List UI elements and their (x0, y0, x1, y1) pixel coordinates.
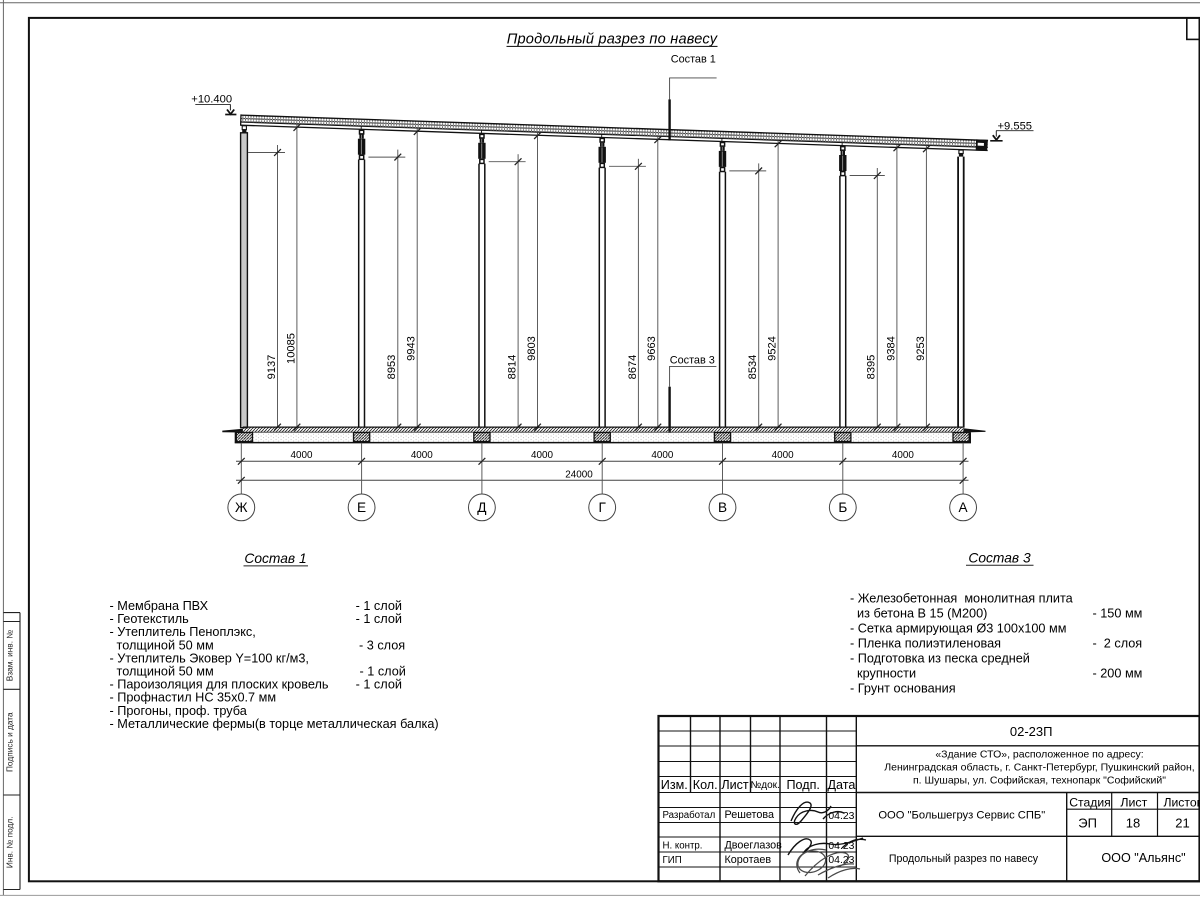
svg-text:- 150 мм: - 150 мм (1093, 607, 1143, 621)
svg-text:9384: 9384 (885, 336, 897, 361)
svg-text:9663: 9663 (646, 336, 658, 361)
svg-text:Продольный разрез по навесу: Продольный разрез по навесу (889, 853, 1039, 865)
svg-text:4000: 4000 (411, 450, 433, 461)
svg-text:4000: 4000 (651, 450, 673, 461)
svg-text:В: В (718, 500, 727, 515)
svg-text:Инв. № подл.: Инв. № подл. (5, 816, 15, 868)
svg-text:А: А (959, 500, 969, 515)
svg-text:04.23: 04.23 (828, 841, 854, 852)
svg-text:Кол.: Кол. (693, 778, 718, 792)
svg-text:Взам. инв. №: Взам. инв. № (5, 630, 15, 682)
svg-text:9803: 9803 (526, 336, 538, 361)
svg-text:из бетона В 15 (М200): из бетона В 15 (М200) (850, 607, 987, 621)
svg-text:Двоеглазов: Двоеглазов (725, 840, 783, 852)
svg-text:- 200 мм: - 200 мм (1093, 667, 1143, 681)
svg-text:9943: 9943 (406, 336, 418, 361)
svg-text:9524: 9524 (767, 336, 779, 361)
svg-text:Продольный разрез по навесу: Продольный разрез по навесу (507, 32, 719, 48)
svg-text:- Пароизоляция для плоских кро: - Пароизоляция для плоских кровель (110, 678, 329, 692)
svg-text:18: 18 (1126, 816, 1140, 831)
svg-text:8814: 8814 (507, 355, 519, 380)
svg-text:21: 21 (1175, 816, 1189, 831)
svg-text:Ж: Ж (235, 500, 248, 515)
svg-text:«Здание СТО», расположенное по: «Здание СТО», расположенное по адресу: (935, 748, 1143, 760)
svg-text:8674: 8674 (627, 355, 639, 380)
svg-text:8395: 8395 (866, 355, 878, 380)
svg-text:- Грунт основания: - Грунт основания (850, 682, 956, 696)
svg-text:10085: 10085 (285, 333, 297, 364)
svg-text:- Мембрана ПВХ: - Мембрана ПВХ (110, 599, 209, 613)
svg-text:02-23П: 02-23П (1010, 724, 1053, 739)
svg-text:- 1 слой: - 1 слой (356, 678, 402, 692)
svg-text:24000: 24000 (565, 469, 593, 480)
svg-text:4000: 4000 (531, 450, 553, 461)
svg-text:Подпись и дата: Подпись и дата (5, 712, 15, 772)
svg-text:9137: 9137 (266, 355, 278, 380)
svg-text:ООО "Альянс": ООО "Альянс" (1101, 851, 1185, 865)
svg-text:+10.400: +10.400 (191, 93, 232, 105)
svg-text:толщиной 50 мм: толщиной 50 мм (110, 665, 214, 679)
svg-text:Стадия: Стадия (1069, 795, 1111, 809)
svg-text:8534: 8534 (747, 355, 759, 380)
svg-text:Ленинградская область, г. Санк: Ленинградская область, г. Санкт-Петербур… (884, 762, 1194, 774)
svg-text:Подп.: Подп. (786, 778, 819, 792)
svg-text:ГИП: ГИП (663, 855, 682, 866)
svg-text:Состав 3: Состав 3 (968, 550, 1031, 565)
svg-text:- Железобетонная монолитная п: - Железобетонная монолитная плита (850, 592, 1074, 606)
svg-text:4000: 4000 (892, 450, 914, 461)
svg-text:- Профнастил НС 35х0.7 мм: - Профнастил НС 35х0.7 мм (110, 691, 277, 705)
svg-text:№док.: №док. (751, 780, 780, 791)
svg-text:Решетова: Решетова (725, 809, 775, 821)
svg-text:Коротаев: Коротаев (725, 854, 772, 866)
svg-text:Е: Е (357, 500, 366, 515)
svg-text:- Подготовка из песка средней: - Подготовка из песка средней (850, 652, 1030, 666)
svg-text:4000: 4000 (291, 450, 313, 461)
svg-text:- Прогоны, проф. труба: - Прогоны, проф. труба (110, 704, 248, 718)
svg-text:8953: 8953 (386, 355, 398, 380)
svg-text:Дата: Дата (827, 778, 855, 792)
svg-text:ЭП: ЭП (1078, 816, 1097, 831)
svg-text:Разработал: Разработал (663, 810, 716, 821)
svg-text:- Сетка армирующая Ø3 100х100: - Сетка армирующая Ø3 100х100 мм (850, 622, 1066, 636)
svg-text:Н. контр.: Н. контр. (663, 840, 703, 851)
svg-text:- Металлические фермы(в торце: - Металлические фермы(в торце металличес… (110, 717, 439, 731)
svg-text:- 2 слоя: - 2 слоя (1093, 637, 1143, 651)
svg-text:Б: Б (838, 500, 847, 515)
svg-text:- Пленка полиэтиленовая: - Пленка полиэтиленовая (850, 637, 1001, 651)
svg-text:- Утеплитель Пеноплэкс,: - Утеплитель Пеноплэкс, (110, 625, 256, 639)
svg-text:- Геотекстиль: - Геотекстиль (110, 612, 190, 626)
svg-text:Листов: Листов (1164, 795, 1200, 809)
svg-text:Состав 1: Состав 1 (671, 53, 716, 65)
svg-text:Лист: Лист (721, 778, 749, 792)
svg-text:толщиной 50 мм: толщиной 50 мм (110, 638, 214, 652)
svg-text:Состав 3: Состав 3 (670, 355, 715, 367)
svg-text:Состав 1: Состав 1 (244, 551, 306, 566)
svg-text:крупности: крупности (850, 667, 916, 681)
svg-text:- Утеплитель Эковер Y=100 кг/м: - Утеплитель Эковер Y=100 кг/м3, (110, 651, 309, 665)
svg-text:4000: 4000 (772, 450, 794, 461)
svg-text:- 3 слоя: - 3 слоя (359, 638, 405, 652)
svg-text:9253: 9253 (915, 336, 927, 361)
svg-text:- 1 слой: - 1 слой (356, 612, 402, 626)
svg-text:- 1 слой: - 1 слой (356, 599, 402, 613)
svg-text:Г: Г (599, 500, 607, 515)
svg-text:Изм.: Изм. (661, 778, 688, 792)
svg-text:Лист: Лист (1120, 795, 1147, 809)
svg-text:ООО "Большегруз Сервис СПБ": ООО "Большегруз Сервис СПБ" (878, 810, 1045, 822)
svg-text:п. Шушары, ул. Софийская, техн: п. Шушары, ул. Софийская, технопарк "Соф… (913, 774, 1166, 786)
svg-text:- 1 слой: - 1 слой (360, 665, 406, 679)
svg-text:Д: Д (477, 500, 486, 515)
